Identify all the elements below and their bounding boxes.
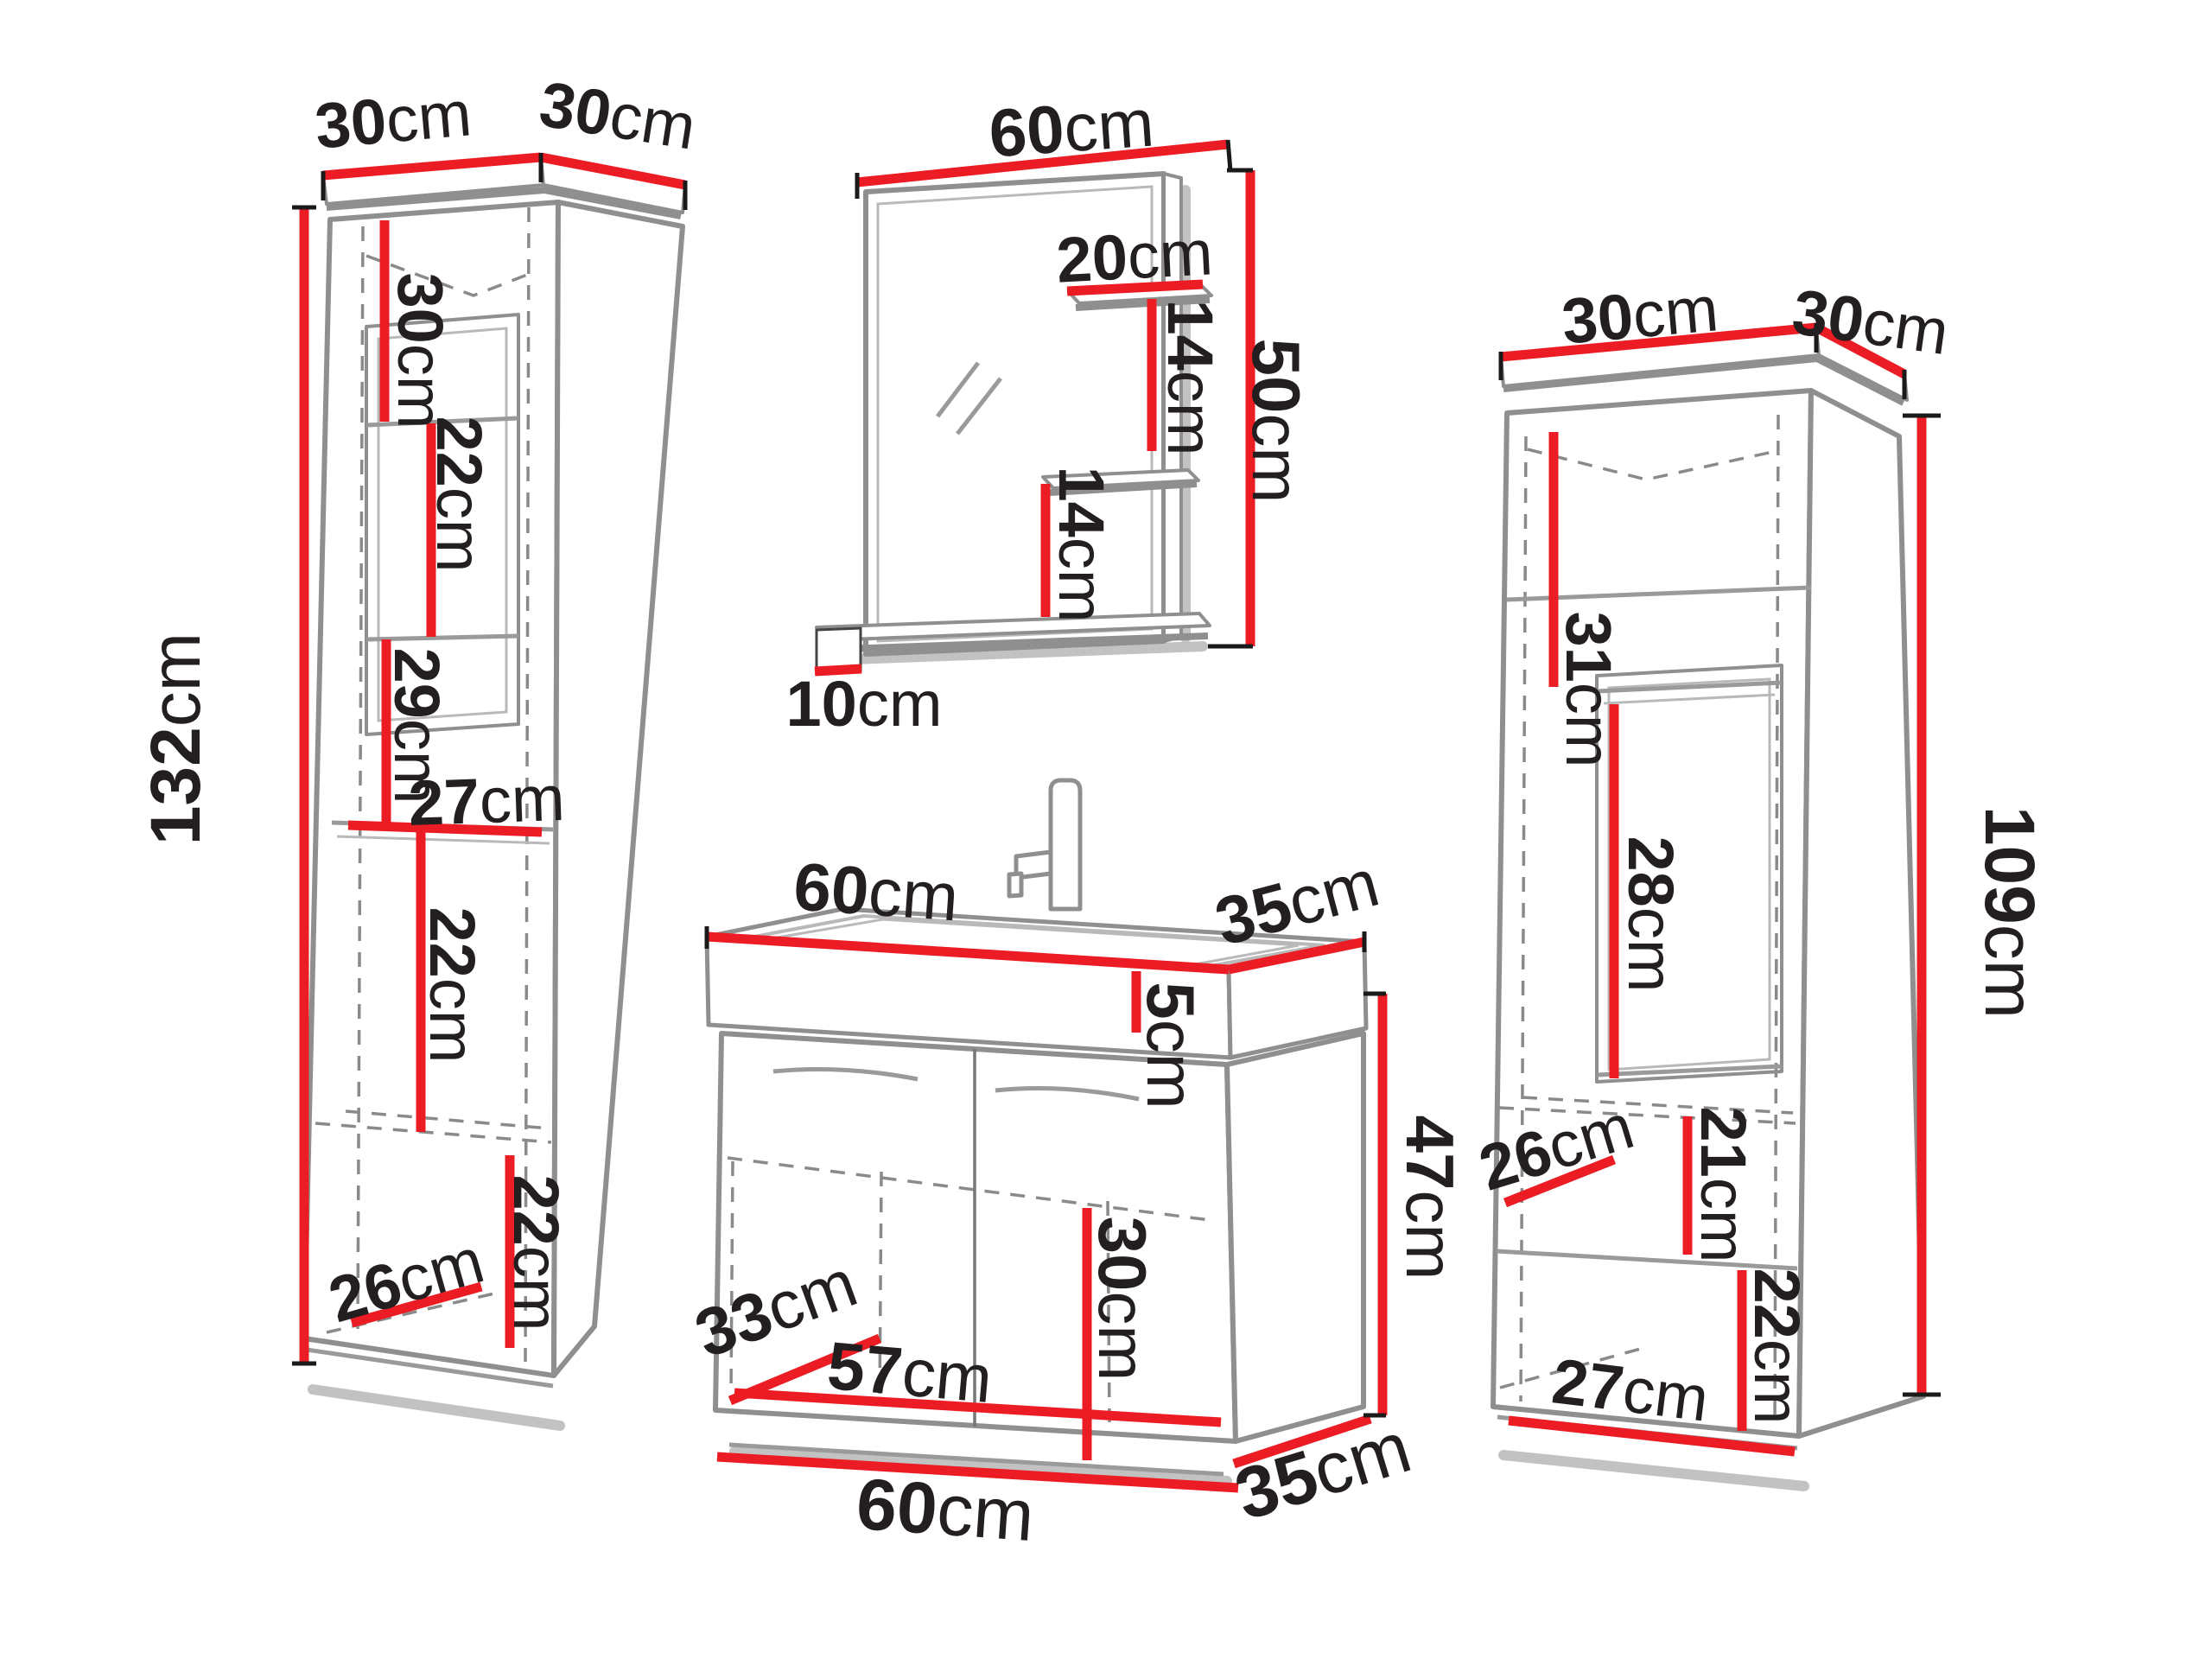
right-column-cabinet [1493,323,1941,1486]
dim-label-right-section-1: 31cm [1554,612,1625,768]
dim-label-mirror-height: 50cm [1238,339,1314,504]
diagram-svg: 30cm30cm132cm30cm22cm29cm27cm22cm26cm22c… [0,0,2212,1659]
dim-label-sink-basin-height: 5cm [1133,982,1209,1109]
sink-side-face [1227,1033,1363,1441]
mirror-tick-2 [1228,140,1230,171]
right-cabinet-side-face [1799,391,1923,1436]
dim-label-mirror-shelf-width: 20cm [1054,216,1214,296]
faucet-spout-tip [1009,874,1021,896]
dim-label-mirror-shelf-gap-2: 14cm [1046,467,1118,623]
right-cabinet-floor-shadow [1503,1455,1804,1486]
dim-label-left-section-2: 22cm [424,416,496,573]
left-cabinet-floor-shadow [313,1389,560,1426]
dim-label-right-overall-height: 109cm [1971,806,2050,1019]
dim-label-left-section-5: 22cm [501,1175,573,1332]
dim-label-right-top-width: 30cm [1559,272,1721,357]
faucet-pipe [1051,780,1080,909]
dim-label-mirror-shelf-gap-1: 14cm [1155,300,1227,456]
dim-label-right-section-4: 22cm [1742,1268,1814,1425]
dim-label-mirror-bottom-shelf-depth: 10cm [786,668,943,740]
dim-label-left-overall-height: 132cm [137,632,215,845]
dim-label-sink-internal-width: 57cm [824,1327,995,1417]
dim-label-left-top-width: 30cm [312,77,474,162]
dim-label-right-section-2: 28cm [1616,836,1688,993]
dim-label-sink-body-height: 47cm [1392,1116,1468,1281]
dim-label-right-section-3: 21cm [1688,1107,1760,1263]
dim-label-left-top-depth: 30cm [535,67,701,162]
dim-label-sink-top-width: 60cm [791,848,961,935]
faucet [1009,780,1080,909]
dim-label-left-section-1: 30cm [385,273,457,429]
dim-label-left-shelf-depth: 27cm [407,761,566,838]
dim-label-mirror-width: 60cm [987,84,1156,171]
dim-label-left-section-4: 22cm [417,907,489,1064]
dim-label-sink-bottom-width: 60cm [854,1463,1036,1556]
bathroom-furniture-dimension-diagram: 30cm30cm132cm30cm22cm29cm27cm22cm26cm22c… [0,0,2212,1659]
dim-label-sink-internal-height: 30cm [1084,1217,1160,1382]
